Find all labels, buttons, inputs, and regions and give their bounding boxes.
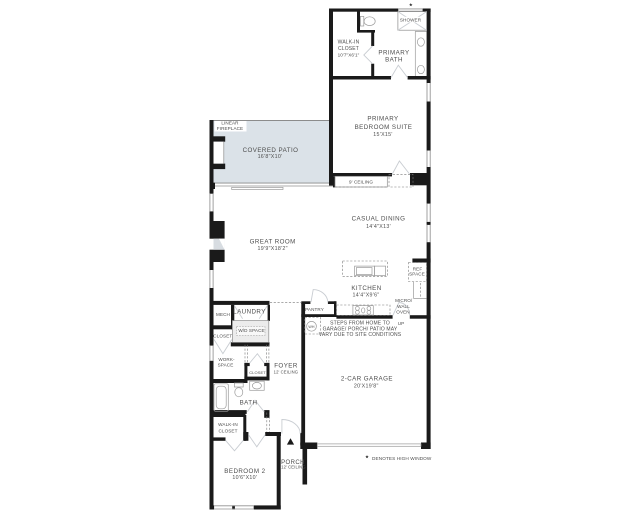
svg-text:14'4"X9'6": 14'4"X9'6" [352,292,379,298]
svg-text:BEDROOM 2: BEDROOM 2 [224,468,265,475]
svg-text:14'4"X13': 14'4"X13' [366,224,391,230]
svg-text:9' CEILING: 9' CEILING [349,179,373,184]
svg-text:WH: WH [308,325,314,329]
svg-text:VARY DUE TO SITE CONDITIONS: VARY DUE TO SITE CONDITIONS [319,332,402,338]
svg-text:FIREPLACE: FIREPLACE [217,126,243,131]
svg-text:19'9"X18'2": 19'9"X18'2" [258,246,288,252]
svg-text:UP: UP [398,321,405,326]
svg-text:CLOSET: CLOSET [249,370,266,375]
svg-text:CLOSET: CLOSET [338,46,359,52]
svg-text:KITCHEN: KITCHEN [351,285,381,292]
svg-text:10'7"X6'1": 10'7"X6'1" [338,53,360,58]
svg-text:15'X15': 15'X15' [373,132,392,138]
svg-text:PRIMARY: PRIMARY [367,116,398,123]
svg-text:CLOSET: CLOSET [213,334,232,339]
svg-text:W/D SPACE: W/D SPACE [238,328,264,333]
svg-text:DENOTES HIGH WINDOW: DENOTES HIGH WINDOW [372,456,432,461]
svg-text:FOYER: FOYER [274,362,298,369]
svg-text:LAUNDRY: LAUNDRY [233,308,266,315]
svg-text:CLOSET: CLOSET [219,428,238,433]
svg-text:PANTRY: PANTRY [305,307,324,312]
svg-text:CASUAL DINING: CASUAL DINING [352,215,406,222]
svg-text:MECH: MECH [216,312,230,317]
svg-text:WALK-IN: WALK-IN [218,422,238,427]
svg-text:BATH: BATH [240,399,258,406]
svg-text:10'6"X10': 10'6"X10' [232,475,257,481]
svg-text:SPACE: SPACE [409,272,425,277]
svg-text:OVEN: OVEN [396,310,409,315]
svg-text:SHOWER: SHOWER [400,17,422,22]
svg-text:16'8"X10': 16'8"X10' [258,154,283,160]
svg-text:2-CAR GARAGE: 2-CAR GARAGE [341,376,393,383]
svg-text:BEDROOM SUITE: BEDROOM SUITE [355,124,413,131]
svg-text:BATH: BATH [385,57,403,64]
svg-text:WALL: WALL [397,304,410,309]
svg-text:WALK-IN: WALK-IN [338,40,360,46]
svg-text:GREAT ROOM: GREAT ROOM [250,239,296,246]
svg-text:MICRO/: MICRO/ [395,298,413,303]
svg-text:20'X19'8": 20'X19'8" [354,384,379,390]
svg-text:12' CEILING: 12' CEILING [274,370,298,375]
svg-text:WORK-: WORK- [218,357,235,362]
svg-text:PRIMARY: PRIMARY [378,50,409,57]
svg-text:SPACE: SPACE [218,362,234,367]
svg-text:12' CEILING: 12' CEILING [281,464,305,469]
